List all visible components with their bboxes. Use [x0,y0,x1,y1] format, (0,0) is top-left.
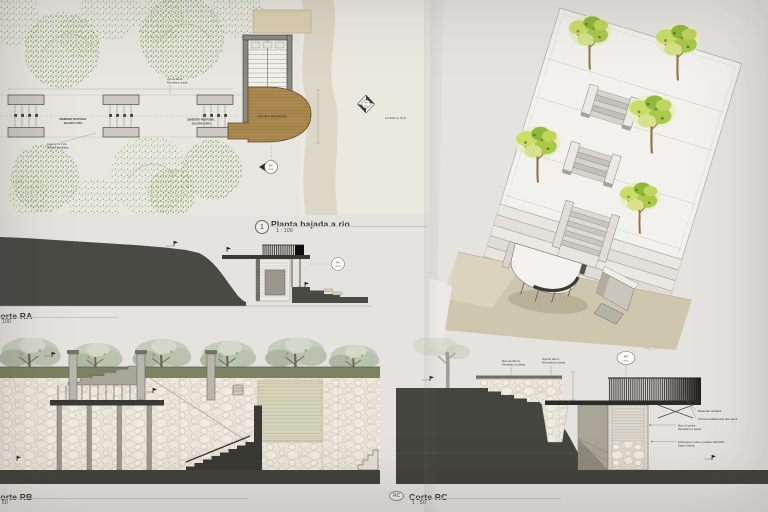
corte-rb-rule [0,498,248,499]
svg-text:Revestida en piedra: Revestida en piedra [542,361,566,365]
svg-text:Estructura en tubos o perfiles: Estructura en tubos o perfiles 100/100/3 [678,440,725,444]
svg-text:Muro de piedra: Muro de piedra [678,423,696,427]
existing-structure [253,10,311,33]
svg-text:SENDERO PEATONAL: SENDERO PEATONAL [59,117,87,121]
rc-marker-ref: RA [624,355,628,359]
river-label: CUENCA RIO [385,116,407,120]
svg-text:BAJADA A RIO: BAJADA A RIO [64,121,82,125]
deck-slab [545,401,701,406]
corte-ra-scale: 1 : 100 [0,319,11,325]
marker-b-ref: RC [269,163,273,167]
ground-band [0,367,380,378]
svg-text:SENDERO PEATONAL: SENDERO PEATONAL [187,118,215,122]
marker-a-ref: RA [364,102,368,105]
svg-text:Según Cálculo: Según Cálculo [678,444,695,448]
section-rc-panel: RA Nº10 Baranda metálica Tarima entablon… [390,338,768,508]
annotations-top: Muro de 30cms Revestido en piedra Viga d… [502,357,566,377]
deck-railing-hatched [262,245,304,255]
svg-text:Viga de 30cms: Viga de 30cms [167,79,183,81]
sheet-fold [424,0,446,512]
plan-title-rule [271,226,427,227]
stone-column [608,405,648,470]
deck-beam [50,400,164,406]
svg-text:Baranda metálica: Baranda metálica [698,409,722,413]
base-band [396,470,768,484]
axon-view-panel [430,0,768,350]
svg-text:Revestido en piedra: Revestido en piedra [678,427,702,431]
deck-slab [222,255,310,259]
svg-text:Grada de 8 x 2 mts: Grada de 8 x 2 mts [47,143,67,146]
base-band [0,470,380,484]
site-plan-panel: TARIMA MIRADOR RA Nº10 RC Nº10 SENDERO P… [0,0,430,215]
drawing-sheet: TARIMA MIRADOR RA Nº10 RC Nº10 SENDERO P… [0,0,768,512]
svg-text:BAJADA A RIO: BAJADA A RIO [192,122,210,126]
ra-marker-ref: RC [336,261,340,265]
marker-a-sheet: Nº10 [364,105,368,108]
deck-braces [658,405,693,418]
svg-text:Tablones atornillados: Tablones atornillados [47,146,69,149]
section-ra-marker: RC Nº10 [310,258,345,271]
section-rc-marker: RA Nº10 [617,352,635,379]
stone-pier [578,405,608,470]
plan-scale: 1 : 100 [276,228,293,234]
section-ra-panel: RC Nº10 [0,222,390,310]
section-rb-panel [0,338,380,486]
corte-rb-scale: 1 : 50 [0,500,8,506]
svg-text:Revestida en piedra: Revestida en piedra [167,81,188,84]
dim-line [571,372,575,400]
svg-text:Revestido en piedra: Revestido en piedra [502,363,526,367]
marker-b-sheet: Nº10 [269,168,273,171]
deck-label: TARIMA MIRADOR [257,115,287,119]
deck-railing-hatched [608,378,701,401]
plan-number-badge: 1 [255,220,269,234]
svg-text:Tarima entablonado tipo deck: Tarima entablonado tipo deck [698,417,738,421]
svg-text:Muro de 30cms: Muro de 30cms [502,359,521,363]
svg-text:Viga de 30cms: Viga de 30cms [542,357,560,361]
timber-band [258,380,322,442]
wall-niche [233,385,243,395]
corte-ra-rule [0,317,118,318]
terrain-cut-left [0,237,246,306]
cut-wall [254,406,262,471]
rc-marker-sheet: Nº10 [624,360,630,363]
